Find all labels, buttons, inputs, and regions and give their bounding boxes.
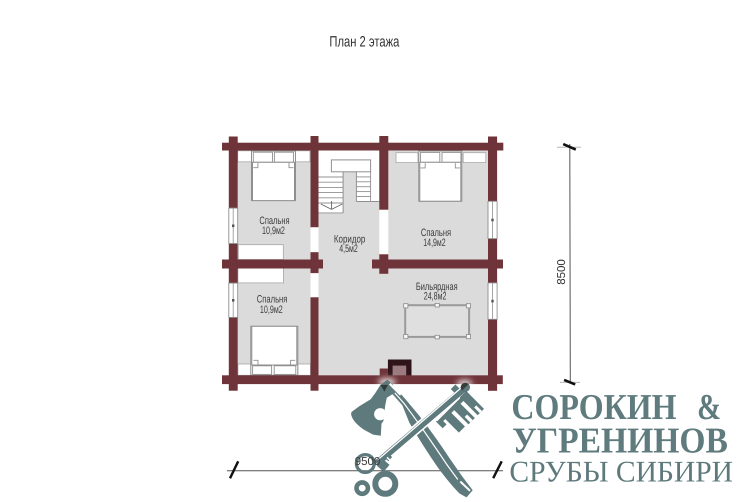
svg-text:4,5м2: 4,5м2 [339,243,358,255]
svg-text:УГРЕНИНОВ: УГРЕНИНОВ [512,420,728,461]
svg-text:СРУБЫ СИБИРИ: СРУБЫ СИБИРИ [509,456,733,489]
svg-text:10,9м2: 10,9м2 [260,304,283,316]
svg-text:План 2 этажа: План 2 этажа [329,33,399,50]
svg-text:10,9м2: 10,9м2 [262,225,285,237]
svg-text:14,9м2: 14,9м2 [423,237,445,249]
svg-text:8500: 8500 [556,259,568,285]
svg-text:24,8м2: 24,8м2 [424,291,447,303]
svg-text:9500: 9500 [355,456,381,468]
